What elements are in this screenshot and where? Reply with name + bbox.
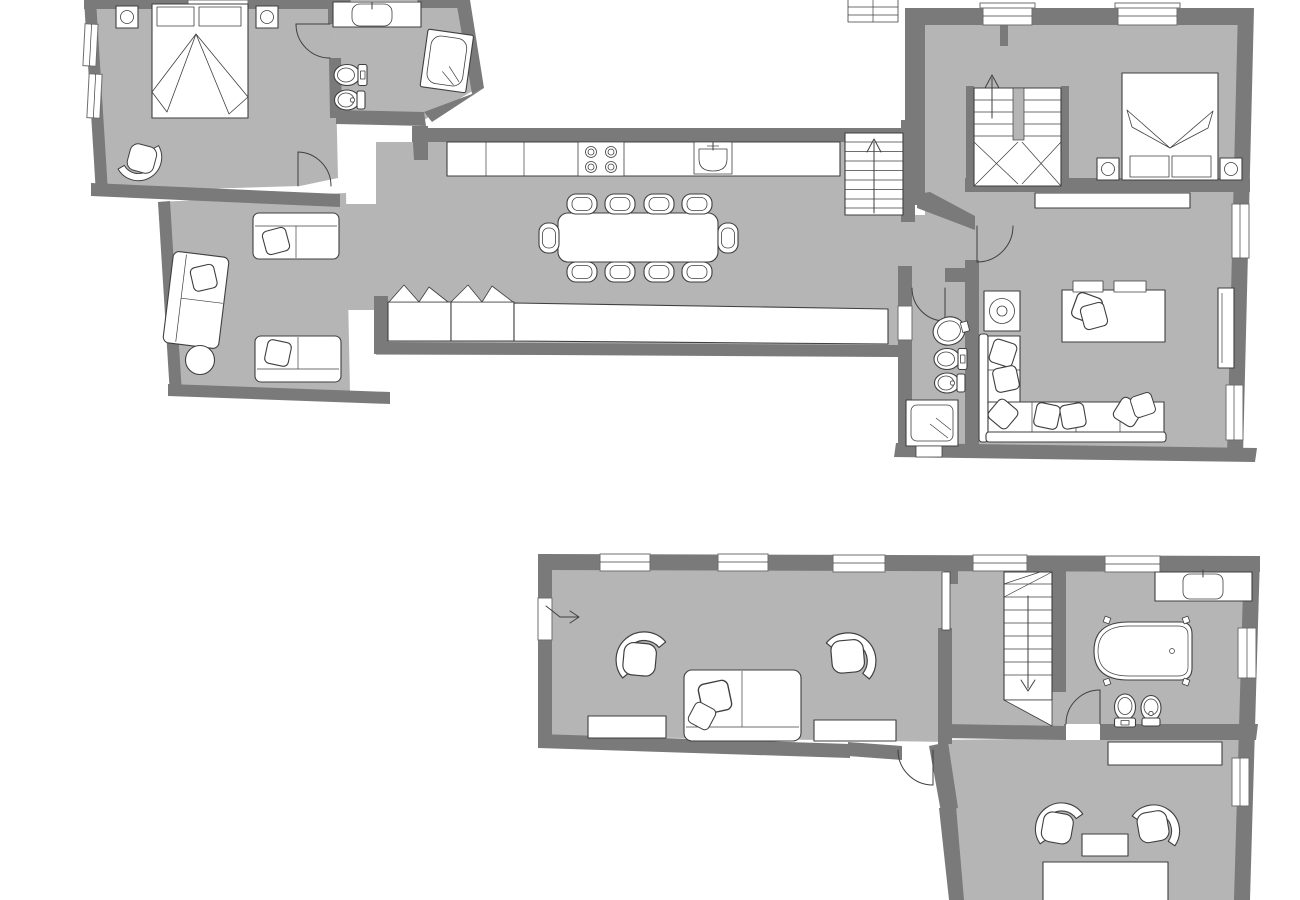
entrance-opening (538, 598, 552, 640)
wall (374, 296, 388, 344)
floor-plan-canvas (0, 0, 1300, 900)
bidet (935, 373, 966, 393)
bed (1043, 862, 1168, 900)
sideboard (814, 720, 896, 741)
door-leaf (942, 572, 950, 630)
record-table (984, 291, 1020, 331)
floor-plan-upper (83, 0, 1257, 462)
stairs-corridor (845, 133, 903, 215)
floor-plan-lower (538, 554, 1260, 900)
freestanding-bathtub (1094, 616, 1192, 686)
sofa (684, 670, 801, 741)
window-sill (1115, 3, 1180, 8)
sofa (253, 213, 339, 259)
pillow (157, 7, 194, 26)
nightstand-lamp (1097, 158, 1119, 180)
window (833, 555, 885, 572)
sofa (255, 336, 341, 382)
dining-table (558, 213, 718, 262)
chaise-sofa (163, 251, 230, 349)
wall (945, 268, 967, 282)
door-arc (898, 750, 933, 785)
round-table (186, 346, 215, 375)
stool (1073, 281, 1103, 292)
pillow (1172, 156, 1211, 177)
wall (966, 86, 974, 186)
pillow (1130, 156, 1169, 177)
wall (1061, 86, 1069, 186)
window (1226, 385, 1243, 440)
toilet (1115, 694, 1136, 727)
sideboard (1108, 742, 1222, 765)
wardrobe-shelf (1035, 193, 1190, 208)
stairs-fragment-top (848, 0, 898, 22)
nightstand-lamp (1220, 158, 1242, 180)
wall (905, 8, 1252, 25)
stool (1114, 281, 1146, 292)
bidet (1141, 696, 1161, 727)
stairs-lower (1004, 572, 1052, 726)
wall (412, 128, 905, 142)
sideboard (588, 716, 666, 738)
stove (578, 142, 624, 176)
window (718, 554, 768, 571)
switchback-stairs (974, 75, 1061, 186)
wall (944, 724, 1066, 740)
kitchen-sink (694, 142, 732, 174)
floor-opening (340, 204, 382, 310)
window (1118, 8, 1177, 25)
window-sill (980, 3, 1035, 8)
window (1232, 204, 1249, 258)
floor-plan-drawing (0, 0, 1300, 900)
window (983, 8, 1032, 25)
pillow (199, 7, 241, 26)
tv-panel (1218, 288, 1234, 368)
wall (1052, 570, 1066, 692)
side-table (1082, 834, 1128, 856)
door-gap (1066, 724, 1100, 740)
window (600, 554, 650, 571)
nightstand-lamp (256, 6, 278, 28)
shower-cabin (420, 29, 474, 93)
toilet (934, 349, 967, 370)
kitchen-counter (447, 142, 840, 176)
toilet (334, 65, 367, 86)
window (898, 306, 912, 340)
bidet (335, 90, 366, 110)
wall (538, 554, 552, 744)
nightstand-lamp (116, 6, 138, 28)
wall (848, 742, 902, 760)
window (1232, 758, 1249, 806)
sink-basin (1183, 574, 1223, 599)
wall (336, 110, 426, 126)
wall (1000, 25, 1008, 46)
